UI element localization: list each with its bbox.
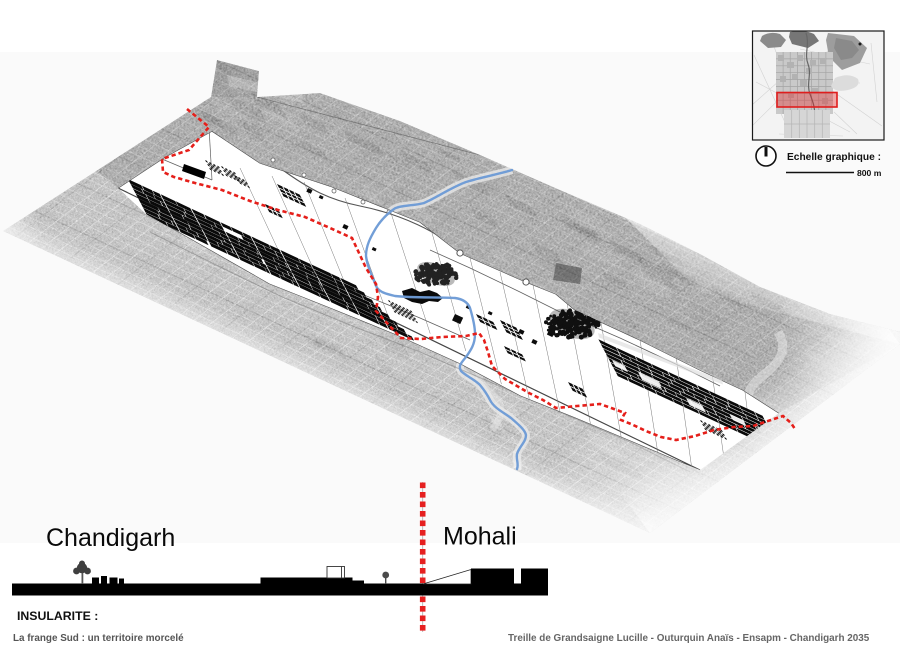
svg-text:La frange Sud : un territoire: La frange Sud : un territoire morcelé — [13, 633, 184, 644]
svg-text:Echelle graphique :: Echelle graphique : — [787, 152, 881, 163]
svg-text:Mohali: Mohali — [443, 523, 517, 551]
svg-text:Chandigarh: Chandigarh — [46, 524, 175, 552]
svg-text:800 m: 800 m — [857, 168, 882, 178]
svg-text:Treille de Grandsaigne Lucille: Treille de Grandsaigne Lucille - Outurqu… — [508, 633, 870, 644]
svg-text:INSULARITE :: INSULARITE : — [17, 609, 98, 623]
